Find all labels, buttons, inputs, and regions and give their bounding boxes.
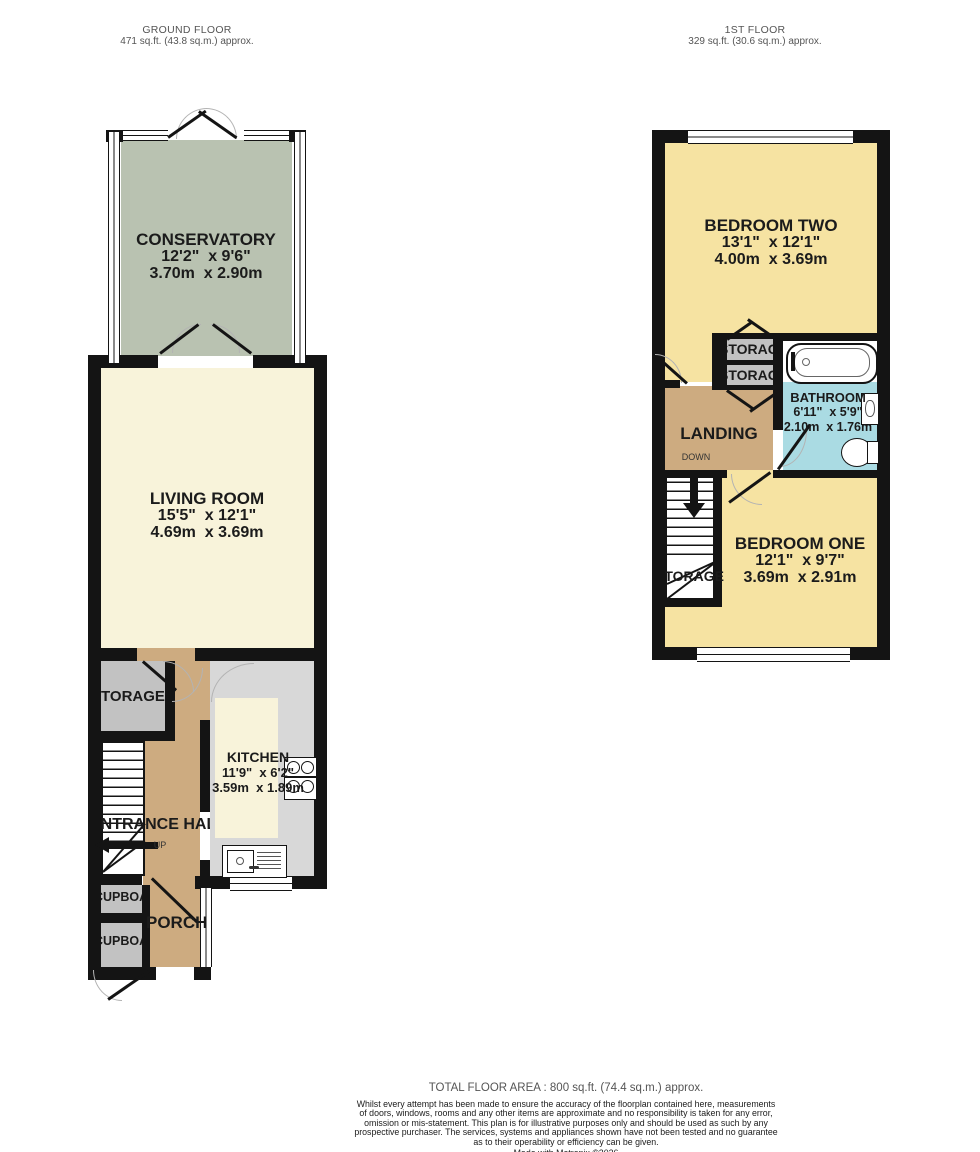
bathtub-icon <box>786 343 878 384</box>
landing-label: LANDING <box>669 424 769 443</box>
storage-ff-mid-label: STORAGE <box>727 367 773 384</box>
up-label: UP <box>146 840 174 850</box>
down-arrow-icon <box>690 476 698 504</box>
room-dims-metric: 3.70m x 2.90m <box>106 266 306 283</box>
ground-floor-area: 471 sq.ft. (43.8 sq.m.) approx. <box>57 36 317 47</box>
window <box>244 130 289 141</box>
down-arrow-head-icon <box>683 503 705 518</box>
room-dims-imperial: 13'1" x 12'1" <box>666 235 876 252</box>
wall <box>851 130 890 143</box>
wall <box>652 130 665 660</box>
window <box>697 647 850 662</box>
wall <box>783 333 877 341</box>
bedroom-one-label-stack: BEDROOM ONE 12'1" x 9'7" 3.69m x 2.91m <box>695 534 905 586</box>
room-dims-imperial: 15'5" x 12'1" <box>102 508 312 525</box>
wall <box>195 648 327 661</box>
wall <box>88 648 137 661</box>
first-floor-title: 1ST FLOOR <box>625 24 885 36</box>
cupboard-top-label: CUPBOARD <box>101 890 142 906</box>
room-dims-imperial: 11'9" x 6'2" <box>196 765 320 780</box>
cupboard-bottom-label: CUPBOARD <box>101 934 142 950</box>
porch-label: PORCH <box>144 913 206 933</box>
footer: TOTAL FLOOR AREA : 800 sq.ft. (74.4 sq.m… <box>330 1082 802 1152</box>
room-dims-metric: 4.00m x 3.69m <box>666 252 876 269</box>
wall <box>88 355 158 368</box>
living-room-label-stack: LIVING ROOM 15'5" x 12'1" 4.69m x 3.69m <box>102 489 312 541</box>
wall <box>292 876 327 889</box>
hall-doorway-floor <box>137 648 195 661</box>
room-dims-metric: 4.69m x 3.69m <box>102 525 312 542</box>
window <box>230 876 292 891</box>
wall <box>194 967 211 980</box>
entrance-hall-label: ENTRANCE HALL <box>101 816 210 835</box>
room-label: BEDROOM ONE <box>695 534 905 553</box>
wall <box>665 598 722 607</box>
room-dims-imperial: 12'1" x 9'7" <box>695 553 905 570</box>
wall <box>652 130 690 143</box>
credit-line: Made with Metropix ©2026 <box>330 1148 802 1152</box>
disclaimer-line: as to their operability or efficiency ca… <box>330 1138 802 1147</box>
storage-stairs-label: STORAGE <box>665 568 725 585</box>
wall <box>850 647 890 660</box>
room-label: CONSERVATORY <box>106 230 306 249</box>
storage-ff-top-label: STORAGE <box>727 341 773 358</box>
room-dims-metric: 3.59m x 1.89m <box>196 780 320 795</box>
wall <box>101 731 175 741</box>
wall <box>200 860 210 876</box>
wall <box>88 355 101 980</box>
bedroom-two-label-stack: BEDROOM TWO 13'1" x 12'1" 4.00m x 3.69m <box>666 216 876 268</box>
storage-gf-label: STORAGE <box>101 688 165 705</box>
wall <box>652 647 697 660</box>
up-arrow-head-icon <box>95 837 109 853</box>
total-floor-area: TOTAL FLOOR AREA : 800 sq.ft. (74.4 sq.m… <box>330 1082 802 1094</box>
wall <box>88 876 142 885</box>
room-label: BATHROOM <box>778 390 878 405</box>
down-label: DOWN <box>675 452 717 462</box>
ground-floor-title-block: GROUND FLOOR 471 sq.ft. (43.8 sq.m.) app… <box>57 24 317 47</box>
room-dims-metric: 3.69m x 2.91m <box>695 570 905 587</box>
disclaimer: Whilst every attempt has been made to en… <box>330 1100 802 1147</box>
wall <box>88 913 142 923</box>
ground-floor-title: GROUND FLOOR <box>57 24 317 36</box>
stairs-up <box>101 741 145 876</box>
door-arc <box>93 970 122 1001</box>
window <box>123 130 168 141</box>
first-floor-area: 329 sq.ft. (30.6 sq.m.) approx. <box>625 36 885 47</box>
window <box>688 130 853 144</box>
conservatory-label-stack: CONSERVATORY 12'2" x 9'6" 3.70m x 2.90m <box>106 230 306 282</box>
floorplan-page: GROUND FLOOR 471 sq.ft. (43.8 sq.m.) app… <box>0 0 980 1152</box>
wall <box>773 470 877 478</box>
kitchen-label-stack: KITCHEN 11'9" x 6'2" 3.59m x 1.89m <box>196 749 320 795</box>
room-dims-imperial: 6'11" x 5'9" <box>778 405 878 420</box>
room-dims-imperial: 12'2" x 9'6" <box>106 249 306 266</box>
room-label: BEDROOM TWO <box>666 216 876 235</box>
room-entrance-hall <box>143 741 200 885</box>
room-label: KITCHEN <box>196 749 320 765</box>
first-floor-title-block: 1ST FLOOR 329 sq.ft. (30.6 sq.m.) approx… <box>625 24 885 47</box>
room-label: LIVING ROOM <box>102 489 312 508</box>
room-dims-metric: 2.10m x 1.76m <box>778 420 878 435</box>
kitchen-sink-icon <box>222 845 287 878</box>
wall <box>314 355 327 889</box>
bathroom-label-stack: BATHROOM 6'11" x 5'9" 2.10m x 1.76m <box>778 390 878 435</box>
toilet-cistern-icon <box>867 441 879 464</box>
